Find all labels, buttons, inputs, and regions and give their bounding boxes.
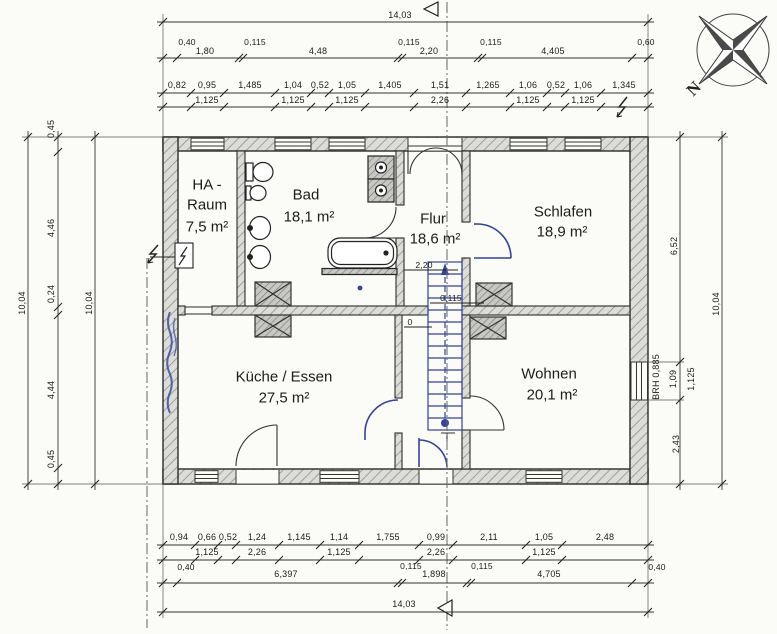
dim-label: 1,24 [248, 532, 266, 542]
staircase [428, 262, 462, 430]
room-label-schlafen: Schlafen [534, 204, 592, 221]
room-label-kueche: Küche / Essen [236, 369, 333, 386]
dimension-lines [22, 14, 728, 618]
window-bottom-2 [320, 471, 359, 483]
schlafen-door-blue [474, 224, 511, 258]
dim-label: 0,40 [648, 562, 665, 572]
dim-label: 14,03 [388, 10, 412, 20]
dim-label: 1,05 [535, 532, 553, 542]
dim-label: 6,397 [274, 569, 298, 579]
window-top-2 [275, 138, 311, 150]
dim-label: 1,125 [195, 547, 219, 557]
washbasin-fixture [248, 246, 271, 269]
dim-label: 4,405 [541, 46, 565, 56]
section-marker-bottom [438, 600, 452, 616]
bathtub-fixture [328, 238, 397, 268]
bath-ledge [322, 269, 397, 275]
dim-label: 1,485 [238, 80, 262, 90]
dim-label: 1,125 [571, 95, 595, 105]
dim-label: 0,40 [178, 37, 195, 47]
dim-label: 1,265 [476, 80, 500, 90]
stair-arrow-icon [441, 263, 449, 275]
dim-label: 10,04 [711, 292, 721, 316]
dim-label: 1,09 [668, 370, 678, 388]
dim-label: 14,03 [392, 599, 416, 609]
dim-label: 1,14 [330, 532, 348, 542]
dim-label: 2,20 [420, 46, 438, 56]
dim-label: 1,05 [338, 80, 356, 90]
dim-label: 6,52 [669, 237, 679, 255]
dim-label: 1,125 [281, 95, 305, 105]
dim-label: 0,52 [219, 532, 237, 542]
section-marker-top [424, 2, 438, 16]
dim-label: 0,52 [311, 80, 329, 90]
entrance-double-door [408, 148, 462, 174]
dim-label: 0,40 [177, 562, 194, 572]
dim-label: 0,115 [471, 561, 493, 571]
dim-label: 1,145 [287, 532, 311, 542]
dim-label: 0,82 [168, 80, 186, 90]
vestibule-corner [441, 433, 455, 441]
washbasin-fixture [248, 217, 271, 240]
dim-label: 2,26 [248, 547, 266, 557]
window-top-1 [191, 138, 224, 150]
dim-label: 0,115 [480, 37, 502, 47]
room-area-flur: 18,6 m² [410, 231, 461, 248]
chimney-block [470, 317, 506, 339]
floor-plan-sheet: HA - Raum 7,5 m² Bad 18,1 m² Flur 18,6 m… [0, 0, 777, 634]
room-label-ha: HA - [192, 177, 221, 194]
dim-label: 2,43 [671, 435, 681, 453]
room-area-kueche: 27,5 m² [259, 390, 310, 407]
dim-label: 1,125 [327, 547, 351, 557]
dim-label: 2,26 [431, 95, 449, 105]
window-bottom-1 [195, 471, 218, 483]
shower-fixture [368, 156, 394, 179]
dim-label: 4,48 [309, 46, 327, 56]
chimney-block [255, 315, 291, 337]
room-area-bad: 18,1 m² [284, 209, 335, 226]
blue-mark [358, 286, 363, 291]
dim-label: 10,04 [84, 291, 94, 315]
dim-label: 4,705 [537, 569, 561, 579]
window-top-5 [565, 138, 601, 150]
chimney-block [255, 282, 291, 306]
dim-label: 1,405 [378, 80, 402, 90]
dim-label: 0,52 [547, 80, 565, 90]
stair-level-dim: 0 [408, 317, 413, 327]
room-label-wohnen: Wohnen [521, 366, 577, 383]
brh-note: BRH 0,885 [651, 354, 661, 400]
room-area-ha: 7,5 m² [186, 219, 229, 236]
dim-label: 1,51 [431, 80, 449, 90]
dim-label: 0,95 [198, 80, 216, 90]
wohnen-door [470, 396, 504, 430]
dim-label: 1,80 [196, 46, 214, 56]
dim-label: 2,26 [427, 547, 445, 557]
dim-label: 4,44 [46, 381, 56, 399]
dim-label: 1,125 [335, 95, 359, 105]
dim-label: 1,125 [532, 547, 556, 557]
shower-fixture [368, 179, 394, 202]
dim-label: 0,45 [46, 120, 56, 138]
room-label-flur: Flur [420, 211, 446, 228]
dim-label: 1,898 [422, 569, 446, 579]
stair-wall-dim: 0,115 [440, 293, 462, 303]
dim-label: 1,06 [574, 80, 592, 90]
dim-label: 2,11 [480, 532, 498, 542]
dim-label: 1,125 [195, 95, 219, 105]
dim-label: 1,755 [376, 532, 400, 542]
room-label-ha2: Raum [187, 197, 227, 214]
stair-headroom-dim: 2,20 [415, 260, 432, 270]
dim-label: 0,60 [637, 37, 654, 47]
room-area-wohnen: 20,1 m² [527, 387, 578, 404]
dim-label: 0,99 [427, 532, 445, 542]
dim-label: 0,115 [398, 37, 420, 47]
dim-label: 4,46 [46, 219, 56, 237]
window-top-3 [329, 138, 365, 150]
dim-label: 1,06 [519, 80, 537, 90]
dim-label: 10,04 [17, 291, 27, 315]
dim-label: 0,115 [244, 37, 266, 47]
dim-label: 1,345 [612, 80, 636, 90]
north-arrow [697, 14, 769, 86]
stair-start-dot [441, 419, 449, 427]
window-bottom-3 [526, 471, 562, 483]
bottom-entrance-door-blue [419, 438, 447, 467]
dim-label: 2,48 [596, 532, 614, 542]
dim-label: 1,04 [284, 80, 302, 90]
dim-label: 0,24 [46, 285, 56, 303]
dim-label: 1,125 [516, 95, 540, 105]
dim-label: 0,66 [198, 532, 216, 542]
room-area-schlafen: 18,9 m² [537, 224, 588, 241]
room-label-bad: Bad [293, 187, 320, 204]
window-top-4 [510, 138, 547, 150]
kueche-corridor-door-blue [365, 400, 398, 440]
wc-fixture [246, 163, 273, 182]
dim-label: 0,94 [170, 532, 188, 542]
window-right [631, 362, 648, 400]
dim-label: 0,45 [46, 450, 56, 468]
dim-label: 1,125 [686, 367, 696, 391]
bad-door [365, 207, 396, 238]
dim-label: 0,115 [400, 561, 422, 571]
urinal-fixture [246, 186, 266, 201]
kueche-exterior-door [236, 425, 277, 466]
